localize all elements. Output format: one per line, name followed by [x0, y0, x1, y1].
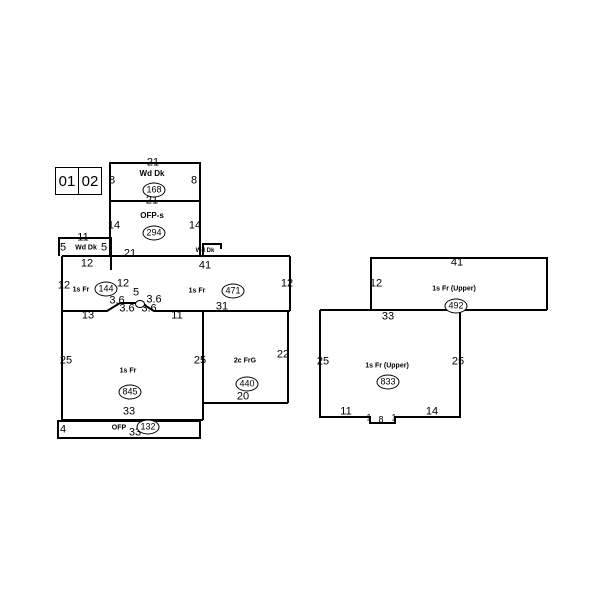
- dim-main-top-12: 12: [81, 259, 93, 270]
- area-492: 492: [444, 299, 467, 314]
- use-ofp: OFP: [112, 425, 126, 432]
- use-r1: 1s Fr (Upper): [432, 286, 476, 293]
- area-132: 132: [136, 420, 159, 435]
- use-garage: 2c FrG: [234, 358, 256, 365]
- use-topdeck: Wd Dk: [140, 170, 165, 178]
- dim-ofps-right: 14: [189, 221, 201, 232]
- dim-leftdeck-right: 5: [101, 243, 107, 254]
- dim-ofps-left: 14: [108, 221, 120, 232]
- use-144: 1s Fr: [73, 287, 90, 294]
- dim-144-right: 12: [117, 279, 129, 290]
- dim-garage-bottom: 20: [237, 392, 249, 403]
- use-ofps: OFP-s: [140, 212, 164, 220]
- dim-topdeck-left: 8: [109, 176, 115, 187]
- dim-845-top-13: 13: [82, 311, 94, 322]
- dim-ofp-left: 4: [60, 425, 66, 436]
- bay-area-circle: [135, 300, 145, 308]
- dim-471-bottom: 31: [216, 302, 228, 313]
- dim-topdeck-top: 21: [147, 158, 159, 169]
- use-r2: 1s Fr (Upper): [365, 363, 409, 370]
- dim-r2-notch-right: 1: [391, 414, 396, 423]
- section-number-box: 01 02: [55, 167, 102, 195]
- dim-r1-top: 41: [451, 258, 463, 269]
- area-471: 471: [221, 284, 244, 299]
- dim-845-top-11: 11: [171, 311, 182, 322]
- section-number-1: 01: [56, 168, 79, 194]
- dim-r2-bottom-14: 14: [426, 407, 438, 418]
- area-144: 144: [94, 282, 117, 297]
- dim-leftdeck-left: 5: [60, 243, 66, 254]
- dim-r2-bottom-11: 11: [340, 407, 351, 418]
- use-471: 1s Fr: [189, 288, 206, 295]
- dim-topdeck-right: 8: [191, 176, 197, 187]
- area-topdeck: 168: [142, 183, 165, 198]
- dim-r1-left: 12: [370, 279, 382, 290]
- area-ofps: 294: [142, 226, 165, 241]
- dim-bay-lower-left: 3.6: [119, 304, 134, 315]
- dim-144-left: 12: [58, 281, 70, 292]
- sketch-canvas: 01 02 2188Wd Dk211414OFP-s115Wd Dk521Wd …: [0, 0, 600, 600]
- dim-r2-right: 25: [452, 357, 464, 368]
- dim-r2-notch-bottom: 8: [378, 416, 383, 425]
- dim-leftdeck-top: 11: [77, 233, 88, 244]
- use-845: 1s Fr: [120, 368, 137, 375]
- dim-main-top-21: 21: [124, 249, 136, 260]
- dim-garage-right: 22: [277, 350, 289, 361]
- dim-r2-left: 25: [317, 357, 329, 368]
- dim-main-top-41: 41: [199, 261, 211, 272]
- dim-r2-notch-left: 1: [366, 414, 371, 423]
- dim-845-right: 25: [194, 356, 206, 367]
- dim-845-left: 25: [60, 356, 72, 367]
- dim-471-right: 12: [281, 279, 293, 290]
- use-tinydeck: Wd Dk: [196, 248, 215, 254]
- dim-845-bottom: 33: [123, 407, 135, 418]
- section-number-2: 02: [79, 168, 101, 194]
- dim-r2-top: 33: [382, 312, 394, 323]
- dim-bay-top: 5: [133, 288, 139, 299]
- area-440: 440: [235, 377, 258, 392]
- area-833: 833: [376, 375, 399, 390]
- area-845: 845: [118, 385, 141, 400]
- sketch-walls: [0, 0, 600, 600]
- use-leftdeck: Wd Dk: [75, 245, 97, 252]
